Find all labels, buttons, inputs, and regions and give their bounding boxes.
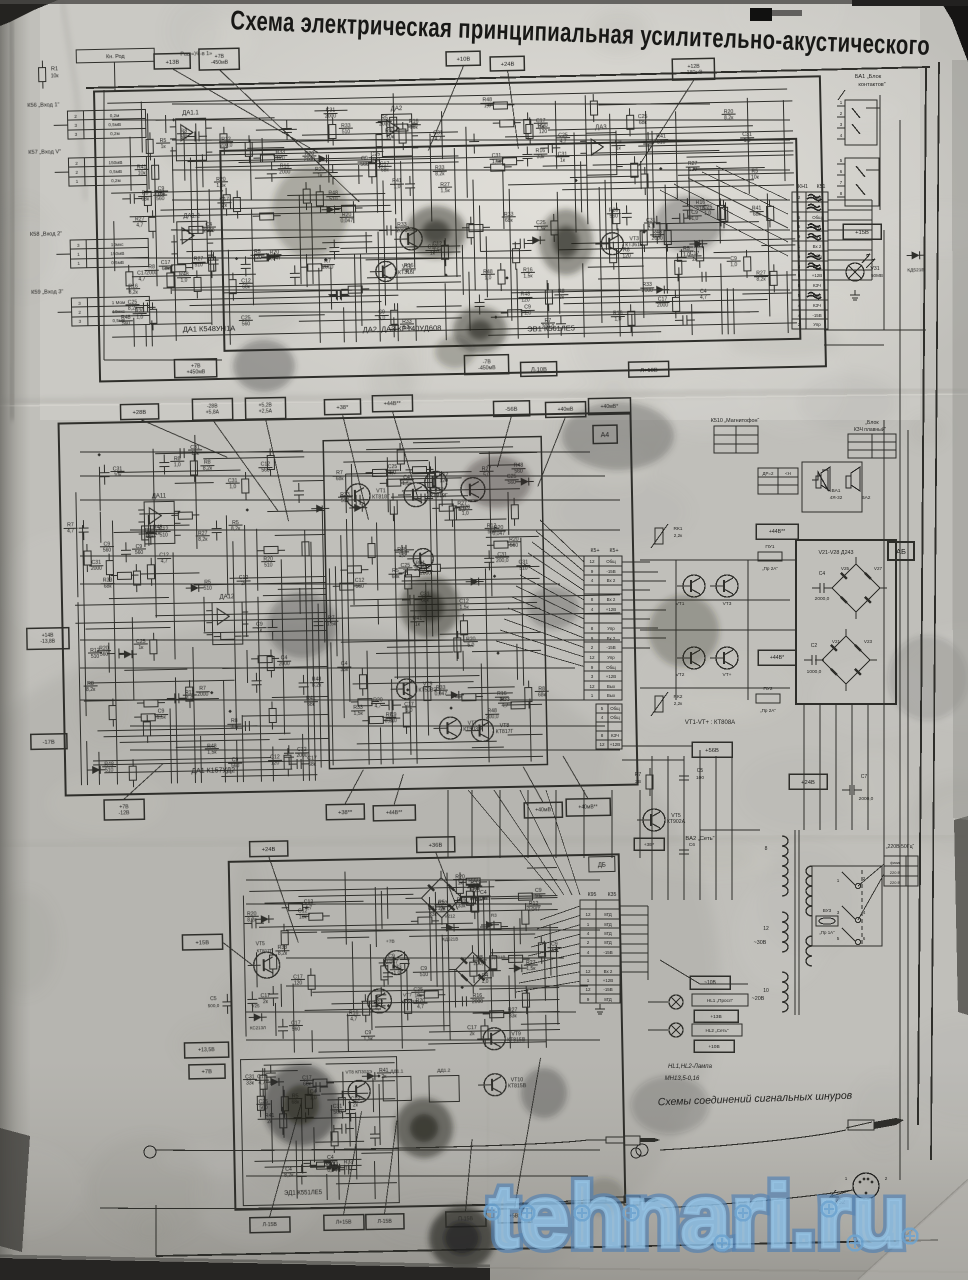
svg-text:К510 „Магнитофон“: К510 „Магнитофон“ bbox=[711, 418, 760, 424]
svg-text:8,2к: 8,2к bbox=[385, 718, 395, 724]
svg-text:V25: V25 bbox=[841, 566, 850, 571]
svg-text:+12В: +12В bbox=[610, 742, 620, 747]
svg-text:510: 510 bbox=[342, 129, 351, 135]
svg-text:10мкс: 10мкс bbox=[111, 242, 124, 247]
svg-text:8ГД: 8ГД bbox=[604, 931, 612, 936]
svg-text:1,5к: 1,5к bbox=[354, 711, 364, 717]
svg-text:ВУ3: ВУ3 bbox=[823, 908, 832, 913]
svg-text:4,7: 4,7 bbox=[435, 136, 442, 142]
svg-text:+40мВ: +40мВ bbox=[535, 807, 551, 813]
svg-text:68к: 68к bbox=[242, 284, 251, 290]
svg-text:4: 4 bbox=[591, 578, 594, 583]
svg-text:ДД1.2: ДД1.2 bbox=[437, 1068, 451, 1074]
svg-text:68к: 68к bbox=[639, 120, 648, 126]
svg-text:4,7: 4,7 bbox=[350, 1016, 357, 1022]
svg-text:КД521В: КД521В bbox=[442, 936, 458, 941]
svg-text:2000: 2000 bbox=[197, 692, 208, 698]
svg-text:V27: V27 bbox=[874, 566, 883, 571]
svg-text:8ГД: 8ГД bbox=[604, 940, 612, 945]
svg-text:Упр: Упр bbox=[607, 626, 615, 631]
svg-text:560: 560 bbox=[356, 584, 365, 590]
svg-text:Л-15В: Л-15В bbox=[377, 1219, 392, 1225]
svg-text:-13,8В: -13,8В bbox=[40, 639, 56, 645]
svg-text:ДА12: ДА12 bbox=[219, 594, 235, 600]
svg-text:Кн. Род: Кн. Род bbox=[106, 54, 125, 60]
svg-text:1,0: 1,0 bbox=[229, 484, 236, 490]
svg-text:5: 5 bbox=[798, 215, 801, 220]
svg-text:1000,0: 1000,0 bbox=[807, 669, 822, 675]
svg-text:1,5к: 1,5к bbox=[364, 1036, 374, 1042]
svg-text:0,047: 0,047 bbox=[385, 960, 398, 966]
svg-text:2000: 2000 bbox=[379, 121, 390, 127]
svg-text:-180мВ: -180мВ bbox=[685, 70, 703, 76]
svg-text:2000: 2000 bbox=[420, 570, 431, 576]
svg-text:4,7: 4,7 bbox=[375, 703, 382, 709]
svg-text:68к: 68к bbox=[308, 762, 317, 768]
svg-text:560: 560 bbox=[242, 321, 251, 327]
svg-text:+40мВ: +40мВ bbox=[557, 407, 573, 413]
svg-text:+44В*: +44В* bbox=[770, 655, 784, 661]
svg-text:2: 2 bbox=[798, 322, 801, 327]
svg-text:12: 12 bbox=[589, 655, 595, 660]
svg-text:68к: 68к bbox=[336, 476, 345, 482]
svg-text:VТ+: VТ+ bbox=[723, 672, 732, 678]
svg-text:Л+15В: Л+15В bbox=[336, 1220, 352, 1226]
svg-text:+7В: +7В bbox=[386, 939, 395, 945]
svg-text:8,2к: 8,2к bbox=[312, 683, 322, 689]
svg-text:5,0: 5,0 bbox=[467, 643, 474, 649]
svg-text:0,2м: 0,2м bbox=[110, 131, 120, 136]
svg-text:0,2м: 0,2м bbox=[110, 113, 120, 118]
svg-text:4: 4 bbox=[798, 313, 801, 318]
svg-text:510: 510 bbox=[519, 566, 528, 572]
svg-text:Л-15В: Л-15В bbox=[262, 1222, 277, 1228]
svg-text:510: 510 bbox=[420, 972, 429, 978]
svg-text:-15В: -15В bbox=[603, 950, 612, 955]
svg-text:К5+: К5+ bbox=[610, 548, 619, 554]
svg-text:2000: 2000 bbox=[91, 566, 102, 572]
svg-text:8,2к: 8,2к bbox=[128, 306, 138, 312]
svg-text:2000: 2000 bbox=[304, 157, 315, 163]
svg-text:8: 8 bbox=[601, 733, 604, 738]
svg-text:10к: 10к bbox=[51, 73, 60, 79]
svg-text:0,047: 0,047 bbox=[527, 907, 540, 913]
svg-text:„Блок: „Блок bbox=[865, 420, 879, 426]
svg-text:+12В: +12В bbox=[606, 607, 616, 612]
svg-text:2000,0: 2000,0 bbox=[815, 596, 830, 602]
svg-text:К95: К95 bbox=[588, 892, 597, 898]
svg-text:1,0: 1,0 bbox=[174, 462, 181, 468]
svg-text:10: 10 bbox=[763, 988, 769, 994]
svg-text:120: 120 bbox=[276, 156, 285, 162]
svg-text:-12В: -12В bbox=[119, 810, 131, 816]
svg-text:ДА1.1: ДА1.1 bbox=[182, 110, 199, 116]
svg-text:Вх 2: Вх 2 bbox=[604, 969, 613, 974]
svg-text:+450мВ: +450мВ bbox=[187, 369, 206, 375]
svg-text:68к: 68к bbox=[162, 266, 171, 272]
svg-text:КЗЧ: КЗЧ bbox=[611, 733, 619, 738]
svg-text:510: 510 bbox=[194, 262, 203, 268]
svg-text:2000: 2000 bbox=[472, 999, 483, 1005]
svg-text:ПУ2: ПУ2 bbox=[763, 686, 772, 692]
svg-text:+38**: +38** bbox=[338, 810, 353, 816]
svg-text:С6: С6 bbox=[689, 842, 695, 848]
svg-text:1: 1 bbox=[587, 922, 590, 927]
svg-text:8,2к: 8,2к bbox=[129, 290, 139, 296]
svg-text:ПУ1: ПУ1 bbox=[765, 544, 774, 550]
svg-text:ВА2: ВА2 bbox=[862, 495, 871, 501]
svg-text:ДА3: ДА3 bbox=[595, 125, 607, 131]
svg-text:+13В: +13В bbox=[710, 1014, 721, 1020]
svg-text:+13В: +13В bbox=[166, 60, 180, 66]
svg-text:10к: 10к bbox=[138, 170, 147, 176]
svg-text:33к: 33к bbox=[246, 1080, 255, 1086]
svg-text:Общ: Общ bbox=[606, 559, 616, 564]
svg-text:68к: 68к bbox=[392, 574, 401, 580]
svg-text:1,0: 1,0 bbox=[136, 315, 143, 321]
svg-text:0,5мВ: 0,5мВ bbox=[111, 260, 124, 265]
svg-text:2000: 2000 bbox=[657, 303, 668, 309]
svg-text:0,047: 0,047 bbox=[492, 531, 505, 537]
svg-text:ДД1.1: ДД1.1 bbox=[390, 1069, 404, 1075]
svg-text:V23: V23 bbox=[864, 639, 873, 644]
svg-text:R1: R1 bbox=[51, 66, 58, 72]
svg-text:+10В: +10В bbox=[457, 57, 471, 63]
svg-text:КН1: КН1 bbox=[798, 184, 808, 190]
svg-text:ДА1 К157УД2: ДА1 К157УД2 bbox=[191, 767, 235, 775]
svg-text:V21: V21 bbox=[832, 639, 841, 644]
svg-text:КЗЧ: КЗЧ bbox=[813, 283, 821, 288]
svg-text:1,5к: 1,5к bbox=[157, 715, 167, 721]
svg-text:~20В: ~20В bbox=[752, 996, 765, 1002]
svg-text:8: 8 bbox=[798, 273, 801, 278]
svg-text:КТ817Г: КТ817Г bbox=[496, 729, 514, 735]
svg-text:510: 510 bbox=[91, 654, 100, 660]
svg-text:1,5к: 1,5к bbox=[207, 750, 217, 756]
svg-text:1,0: 1,0 bbox=[744, 138, 751, 144]
svg-text:33к: 33к bbox=[509, 1013, 518, 1019]
svg-text:8,2к: 8,2к bbox=[198, 537, 208, 543]
svg-text:8,2к: 8,2к bbox=[756, 276, 766, 282]
svg-text:~10В: ~10В bbox=[704, 980, 716, 986]
svg-text:1,0: 1,0 bbox=[730, 262, 737, 268]
svg-text:~30В: ~30В bbox=[754, 940, 767, 946]
svg-text:К57 „Вход V“: К57 „Вход V“ bbox=[28, 149, 61, 156]
svg-text:-15В: -15В bbox=[603, 987, 612, 992]
svg-text:-15В: -15В bbox=[606, 645, 615, 650]
svg-text:Общ: Общ bbox=[610, 706, 620, 711]
svg-text:VТ2: VТ2 bbox=[676, 672, 685, 678]
svg-text:0,5мВ: 0,5мВ bbox=[109, 169, 122, 174]
svg-text:+7В: +7В bbox=[201, 1069, 212, 1075]
svg-text:Упр: Упр bbox=[607, 655, 615, 660]
svg-text:1,0: 1,0 bbox=[614, 317, 621, 323]
svg-text:+2,5А: +2,5А bbox=[259, 408, 273, 414]
svg-text:50МВ: 50МВ bbox=[871, 273, 883, 278]
svg-text:1: 1 bbox=[798, 244, 801, 249]
svg-text:ДБ: ДБ bbox=[598, 863, 606, 869]
svg-text:4,7: 4,7 bbox=[700, 295, 707, 301]
svg-text:1 Мом: 1 Мом bbox=[112, 300, 126, 305]
svg-text:Л-10В: Л-10В bbox=[531, 367, 547, 373]
svg-text:+12В: +12В bbox=[812, 273, 822, 278]
svg-text:R3: R3 bbox=[491, 913, 497, 918]
svg-text:+3В*: +3В* bbox=[644, 842, 655, 848]
svg-text:-56В: -56В bbox=[505, 407, 517, 413]
svg-text:1,0: 1,0 bbox=[683, 252, 690, 258]
svg-text:АБ: АБ bbox=[896, 547, 906, 556]
svg-text:12: 12 bbox=[763, 926, 769, 932]
svg-text:К5+: К5+ bbox=[591, 548, 600, 554]
svg-text:4,7: 4,7 bbox=[375, 1006, 382, 1012]
svg-text:560: 560 bbox=[360, 162, 369, 168]
svg-text:ДА1 К548УН1А: ДА1 К548УН1А bbox=[183, 324, 236, 334]
svg-text:+40мВ**: +40мВ** bbox=[578, 804, 597, 810]
svg-text:1,0: 1,0 bbox=[462, 511, 469, 517]
svg-text:8: 8 bbox=[591, 626, 594, 631]
svg-text:С2: С2 bbox=[811, 643, 818, 649]
svg-text:5: 5 bbox=[798, 293, 801, 298]
svg-text:VТ5: VТ5 bbox=[256, 941, 266, 947]
svg-text:-450мВ: -450мВ bbox=[478, 365, 496, 371]
svg-text:1,5к: 1,5к bbox=[523, 273, 533, 279]
svg-text:8,2к: 8,2к bbox=[231, 526, 241, 532]
svg-text:К58 „Вход 2“: К58 „Вход 2“ bbox=[30, 231, 62, 238]
svg-text:2,2к: 2,2к bbox=[674, 701, 683, 706]
svg-text:+38*: +38* bbox=[336, 405, 349, 411]
svg-text:2,2к: 2,2к bbox=[674, 533, 683, 538]
svg-text:560: 560 bbox=[122, 321, 131, 327]
svg-text:560: 560 bbox=[292, 1026, 301, 1032]
svg-text:10к: 10к bbox=[535, 894, 544, 900]
svg-text:220 В: 220 В bbox=[890, 870, 901, 875]
svg-text:С4: С4 bbox=[819, 571, 826, 577]
svg-text:12: 12 bbox=[589, 684, 595, 689]
svg-text:БА1 „Блок: БА1 „Блок bbox=[855, 74, 882, 80]
svg-text:0,2м: 0,2м bbox=[111, 178, 121, 183]
svg-text:ДА2, ДА3 КР140УД608: ДА2, ДА3 КР140УД608 bbox=[363, 323, 442, 334]
svg-text:5: 5 bbox=[798, 224, 801, 229]
svg-text:+24В: +24В bbox=[262, 847, 276, 853]
svg-text:68к: 68к bbox=[307, 702, 316, 708]
svg-text:9: 9 bbox=[591, 665, 594, 670]
svg-text:4,7: 4,7 bbox=[67, 528, 74, 534]
svg-text:-15В: -15В bbox=[606, 569, 615, 574]
svg-text:8: 8 bbox=[765, 846, 768, 852]
svg-text:+36В: +36В bbox=[429, 843, 443, 849]
svg-text:9: 9 bbox=[587, 997, 590, 1002]
svg-text:+44В**: +44В** bbox=[386, 810, 402, 816]
svg-text:КЗЧ: КЗЧ bbox=[813, 303, 821, 308]
svg-text:ЭВ1 К561ЛЕ5: ЭВ1 К561ЛЕ5 bbox=[527, 324, 575, 334]
svg-text:+44В**: +44В** bbox=[384, 401, 402, 407]
svg-text:1,0: 1,0 bbox=[180, 278, 187, 284]
svg-text:2000: 2000 bbox=[296, 753, 307, 759]
svg-text:68к: 68к bbox=[104, 584, 113, 590]
svg-text:2: 2 bbox=[587, 940, 590, 945]
svg-text:2000: 2000 bbox=[322, 265, 333, 271]
svg-text:0,5мВ: 0,5мВ bbox=[108, 122, 121, 127]
svg-text:2000: 2000 bbox=[642, 288, 653, 294]
svg-text:4,7: 4,7 bbox=[258, 1080, 265, 1086]
svg-text:контактов“: контактов“ bbox=[858, 82, 885, 88]
svg-text:560: 560 bbox=[610, 214, 619, 220]
svg-text:1,0: 1,0 bbox=[484, 275, 491, 281]
svg-text:КС213Л: КС213Л bbox=[250, 1025, 266, 1030]
svg-text:КТ902А: КТ902А bbox=[667, 819, 686, 825]
svg-text:RК1: RК1 bbox=[674, 526, 683, 532]
svg-text:фаза: фаза bbox=[890, 860, 900, 865]
svg-text:12: 12 bbox=[585, 969, 591, 974]
svg-text:10к: 10к bbox=[537, 124, 546, 130]
svg-text:68к: 68к bbox=[146, 534, 155, 540]
svg-text:Вых: Вых bbox=[607, 684, 616, 689]
svg-text:ЭД1 К551ЛЕ5: ЭД1 К551ЛЕ5 bbox=[284, 1190, 323, 1197]
svg-text:8: 8 bbox=[798, 283, 801, 288]
svg-text:1,0: 1,0 bbox=[186, 696, 193, 702]
svg-text:9: 9 bbox=[798, 234, 801, 239]
svg-text:8: 8 bbox=[591, 597, 594, 602]
svg-text:12: 12 bbox=[589, 559, 595, 564]
svg-text:Л+10В: Л+10В bbox=[640, 368, 658, 374]
svg-text:68к: 68к bbox=[538, 692, 547, 698]
svg-text:tehnari.ru: tehnari.ru bbox=[489, 1167, 907, 1267]
svg-text:V212: V212 bbox=[444, 913, 455, 918]
svg-text:8ГД: 8ГД bbox=[604, 997, 612, 1002]
svg-text:К56 „Вход 1“: К56 „Вход 1“ bbox=[27, 102, 59, 109]
svg-text:6: 6 bbox=[863, 936, 866, 941]
svg-text:VТ3: VТ3 bbox=[723, 601, 732, 607]
svg-text:К35: К35 bbox=[608, 892, 617, 898]
svg-text:4: 4 bbox=[798, 264, 801, 269]
svg-text:-17В: -17В bbox=[43, 740, 55, 746]
svg-text:4,7: 4,7 bbox=[502, 703, 509, 709]
svg-text:+56В: +56В bbox=[705, 748, 719, 754]
svg-text:V31: V31 bbox=[870, 266, 879, 272]
svg-text:4: 4 bbox=[601, 715, 604, 720]
svg-text:VТ1-VТ+ : КТ808А: VТ1-VТ+ : КТ808А bbox=[685, 720, 735, 726]
svg-text:10к: 10к bbox=[114, 472, 123, 478]
svg-text:1,5к: 1,5к bbox=[216, 183, 226, 189]
svg-text:510: 510 bbox=[204, 586, 213, 592]
svg-text:+24В: +24В bbox=[801, 780, 815, 786]
svg-text:1,5к: 1,5к bbox=[460, 605, 470, 611]
svg-text:10к: 10к bbox=[299, 914, 308, 920]
svg-text:+5,8А: +5,8А bbox=[206, 409, 220, 415]
svg-text:2000: 2000 bbox=[146, 270, 157, 276]
svg-text:1: 1 bbox=[837, 878, 840, 883]
svg-text:1: 1 bbox=[587, 978, 590, 983]
svg-text:2000: 2000 bbox=[279, 661, 290, 667]
svg-text:3: 3 bbox=[837, 910, 840, 915]
svg-text:3: 3 bbox=[591, 674, 594, 679]
svg-text:Вых: Вых bbox=[607, 693, 616, 698]
svg-text:Общ: Общ bbox=[812, 215, 822, 220]
svg-text:-15В: -15В bbox=[812, 313, 821, 318]
svg-text:+15В: +15В bbox=[855, 230, 869, 236]
svg-text:5,0: 5,0 bbox=[378, 315, 385, 321]
svg-text:Общ: Общ bbox=[610, 715, 620, 720]
svg-text:2: 2 bbox=[798, 195, 801, 200]
svg-text:Рав «Ус-в 1»: Рав «Ус-в 1» bbox=[180, 51, 212, 58]
svg-text:ДА2: ДА2 bbox=[391, 106, 403, 112]
svg-text:8,2к: 8,2к bbox=[203, 466, 213, 472]
svg-text:4,7: 4,7 bbox=[161, 558, 168, 564]
svg-text:-450мВ: -450мВ bbox=[211, 60, 229, 66]
svg-text:5: 5 bbox=[837, 936, 840, 941]
svg-text:4: 4 bbox=[591, 607, 594, 612]
svg-text:510: 510 bbox=[341, 498, 350, 504]
svg-text:200,0: 200,0 bbox=[486, 714, 499, 720]
svg-text:1,0: 1,0 bbox=[524, 310, 531, 316]
svg-text:9: 9 bbox=[591, 569, 594, 574]
svg-text:150мВ: 150мВ bbox=[110, 251, 124, 256]
svg-text:1,0: 1,0 bbox=[393, 971, 400, 977]
svg-text:68к: 68к bbox=[505, 218, 514, 224]
svg-text:+28В: +28В bbox=[132, 410, 146, 416]
svg-text:1,5к: 1,5к bbox=[402, 481, 412, 487]
svg-text:КД521В: КД521В bbox=[907, 267, 924, 273]
svg-text:4,7: 4,7 bbox=[136, 223, 143, 229]
svg-text:220 В: 220 В bbox=[890, 880, 901, 885]
svg-text:560: 560 bbox=[510, 543, 519, 549]
svg-text:Вх 2: Вх 2 bbox=[607, 578, 616, 583]
svg-text:510: 510 bbox=[657, 140, 666, 146]
svg-text:С5: С5 bbox=[210, 996, 217, 1002]
svg-text:560: 560 bbox=[103, 548, 112, 554]
svg-text:0,047: 0,047 bbox=[268, 256, 281, 262]
svg-text:510: 510 bbox=[105, 768, 114, 774]
svg-text:1,0: 1,0 bbox=[482, 979, 489, 985]
svg-text:ВА1: ВА1 bbox=[832, 488, 841, 494]
svg-text:2000,0: 2000,0 bbox=[859, 796, 874, 802]
svg-text:ДР=2: ДР=2 bbox=[763, 471, 774, 476]
svg-text:10к: 10к bbox=[751, 175, 760, 181]
svg-text:68к: 68к bbox=[141, 196, 150, 202]
svg-text:2000: 2000 bbox=[203, 228, 214, 234]
svg-text:560: 560 bbox=[261, 468, 270, 474]
svg-text:33к: 33к bbox=[230, 724, 239, 730]
svg-text:V21-V28 Д243: V21-V28 Д243 bbox=[818, 550, 853, 556]
svg-text:КЗЧ плавный“: КЗЧ плавный“ bbox=[854, 426, 887, 433]
svg-text:R7: R7 bbox=[635, 772, 642, 778]
svg-text:Общ: Общ bbox=[606, 665, 616, 670]
svg-text:+24В: +24В bbox=[501, 62, 515, 68]
svg-text:НL1 „Просл“: НL1 „Просл“ bbox=[707, 998, 734, 1003]
svg-text:1,5к: 1,5к bbox=[492, 159, 502, 165]
svg-text:4,7: 4,7 bbox=[647, 224, 654, 230]
svg-text:8,2к: 8,2к bbox=[435, 171, 445, 177]
svg-text:500,0: 500,0 bbox=[208, 1003, 220, 1008]
svg-text:„Пр 2А“: „Пр 2А“ bbox=[762, 566, 778, 571]
svg-text:5: 5 bbox=[601, 706, 604, 711]
svg-text:+12В: +12В bbox=[603, 978, 613, 983]
svg-text:4,7: 4,7 bbox=[417, 1004, 424, 1010]
svg-text:120: 120 bbox=[622, 253, 631, 259]
svg-text:10к: 10к bbox=[157, 192, 166, 198]
svg-text:2В: 2В bbox=[635, 779, 641, 785]
svg-text:+44В**: +44В** bbox=[769, 529, 785, 535]
svg-text:+15В: +15В bbox=[195, 940, 209, 946]
svg-text:КТ817Г: КТ817Г bbox=[257, 948, 273, 953]
svg-text:Вх 2: Вх 2 bbox=[813, 244, 822, 249]
svg-text:120: 120 bbox=[521, 297, 530, 303]
svg-text:33к: 33к bbox=[537, 154, 546, 160]
svg-text:Вх 2: Вх 2 bbox=[607, 597, 616, 602]
svg-text:8,2к: 8,2к bbox=[278, 951, 288, 957]
svg-text:+13,5В: +13,5В bbox=[198, 1047, 215, 1053]
svg-text:5: 5 bbox=[798, 254, 801, 259]
